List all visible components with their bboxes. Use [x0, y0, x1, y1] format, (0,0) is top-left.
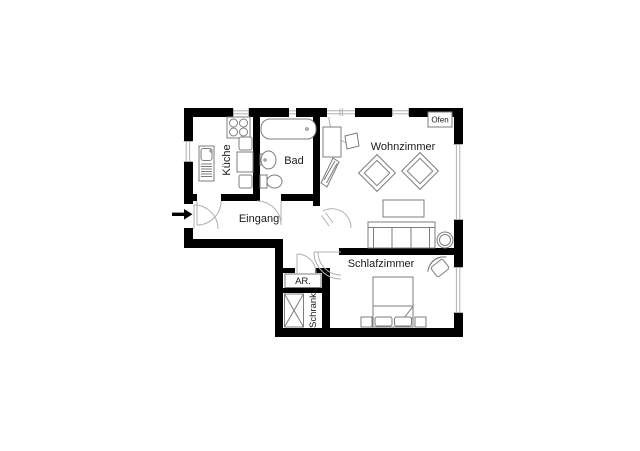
storage-closet: AR. Schrank [285, 274, 322, 328]
window-kitchen-top [233, 107, 249, 118]
bed [373, 277, 413, 327]
nightstand-left [361, 317, 372, 327]
wall-kitchen-bath [253, 117, 260, 201]
room-label-kitchen: Küche [221, 144, 233, 175]
room-label-bedroom: Schlafzimmer [348, 258, 415, 270]
storage-room-box: AR. [285, 274, 321, 288]
living-furniture: Ofen [321, 112, 453, 248]
living-tv-panel [321, 158, 339, 187]
living-armchair-right [402, 153, 439, 190]
wall-living-bedroom [339, 248, 454, 255]
room-label-entrance: Eingang [239, 213, 279, 225]
bed-pillow-left [375, 317, 392, 326]
kitchen-chair-top [239, 137, 252, 150]
wall-lower-left [275, 248, 283, 328]
living-desk-chair [345, 133, 359, 149]
closet-label: Schrank [308, 293, 319, 328]
wall-diagonal-lower [330, 224, 342, 250]
window-living-top [392, 107, 409, 118]
kitchen-door [197, 201, 221, 225]
wall-hall-top-b [221, 194, 256, 201]
bath-sink [260, 151, 276, 169]
bath-furniture [260, 119, 316, 188]
nightstand-right [415, 317, 426, 327]
kitchen-table [237, 152, 253, 172]
storage-door [297, 254, 316, 273]
living-door [322, 209, 352, 228]
window-bedroom-right [453, 267, 463, 313]
room-label-bath: Bad [284, 155, 304, 167]
window-bath-top [289, 107, 296, 118]
wall-bottom [275, 328, 463, 337]
window-living-right [453, 144, 463, 220]
kitchen-sink [199, 146, 214, 181]
closet-box [285, 294, 304, 327]
oven-label: Ofen [431, 116, 448, 125]
room-label-living: Wohnzimmer [371, 141, 436, 153]
window-kitchen-left [183, 141, 193, 162]
sofa [368, 222, 435, 248]
toilet [260, 175, 282, 188]
bed-pillow-right [395, 317, 412, 326]
wall-closet-right [322, 268, 330, 328]
window-living-balcony [327, 107, 355, 118]
floor-plan: Ofen [0, 0, 640, 451]
storage-room-label: AR. [295, 276, 311, 287]
wall-hall-top-c [281, 194, 313, 201]
oven-box: Ofen [428, 112, 452, 127]
kitchen-chair-bottom [239, 175, 252, 188]
living-armchair-left [359, 155, 396, 192]
coffee-table [383, 200, 424, 217]
living-desk [323, 127, 341, 157]
side-table [437, 232, 453, 248]
kitchen-stove [227, 117, 250, 138]
bedroom-chair [424, 253, 453, 280]
wall-hall-top-a [193, 194, 197, 201]
wall-entrance-bottom [184, 239, 283, 248]
bathtub [261, 119, 316, 139]
wall-top [184, 108, 463, 117]
wall-storage-top-a [283, 268, 295, 273]
